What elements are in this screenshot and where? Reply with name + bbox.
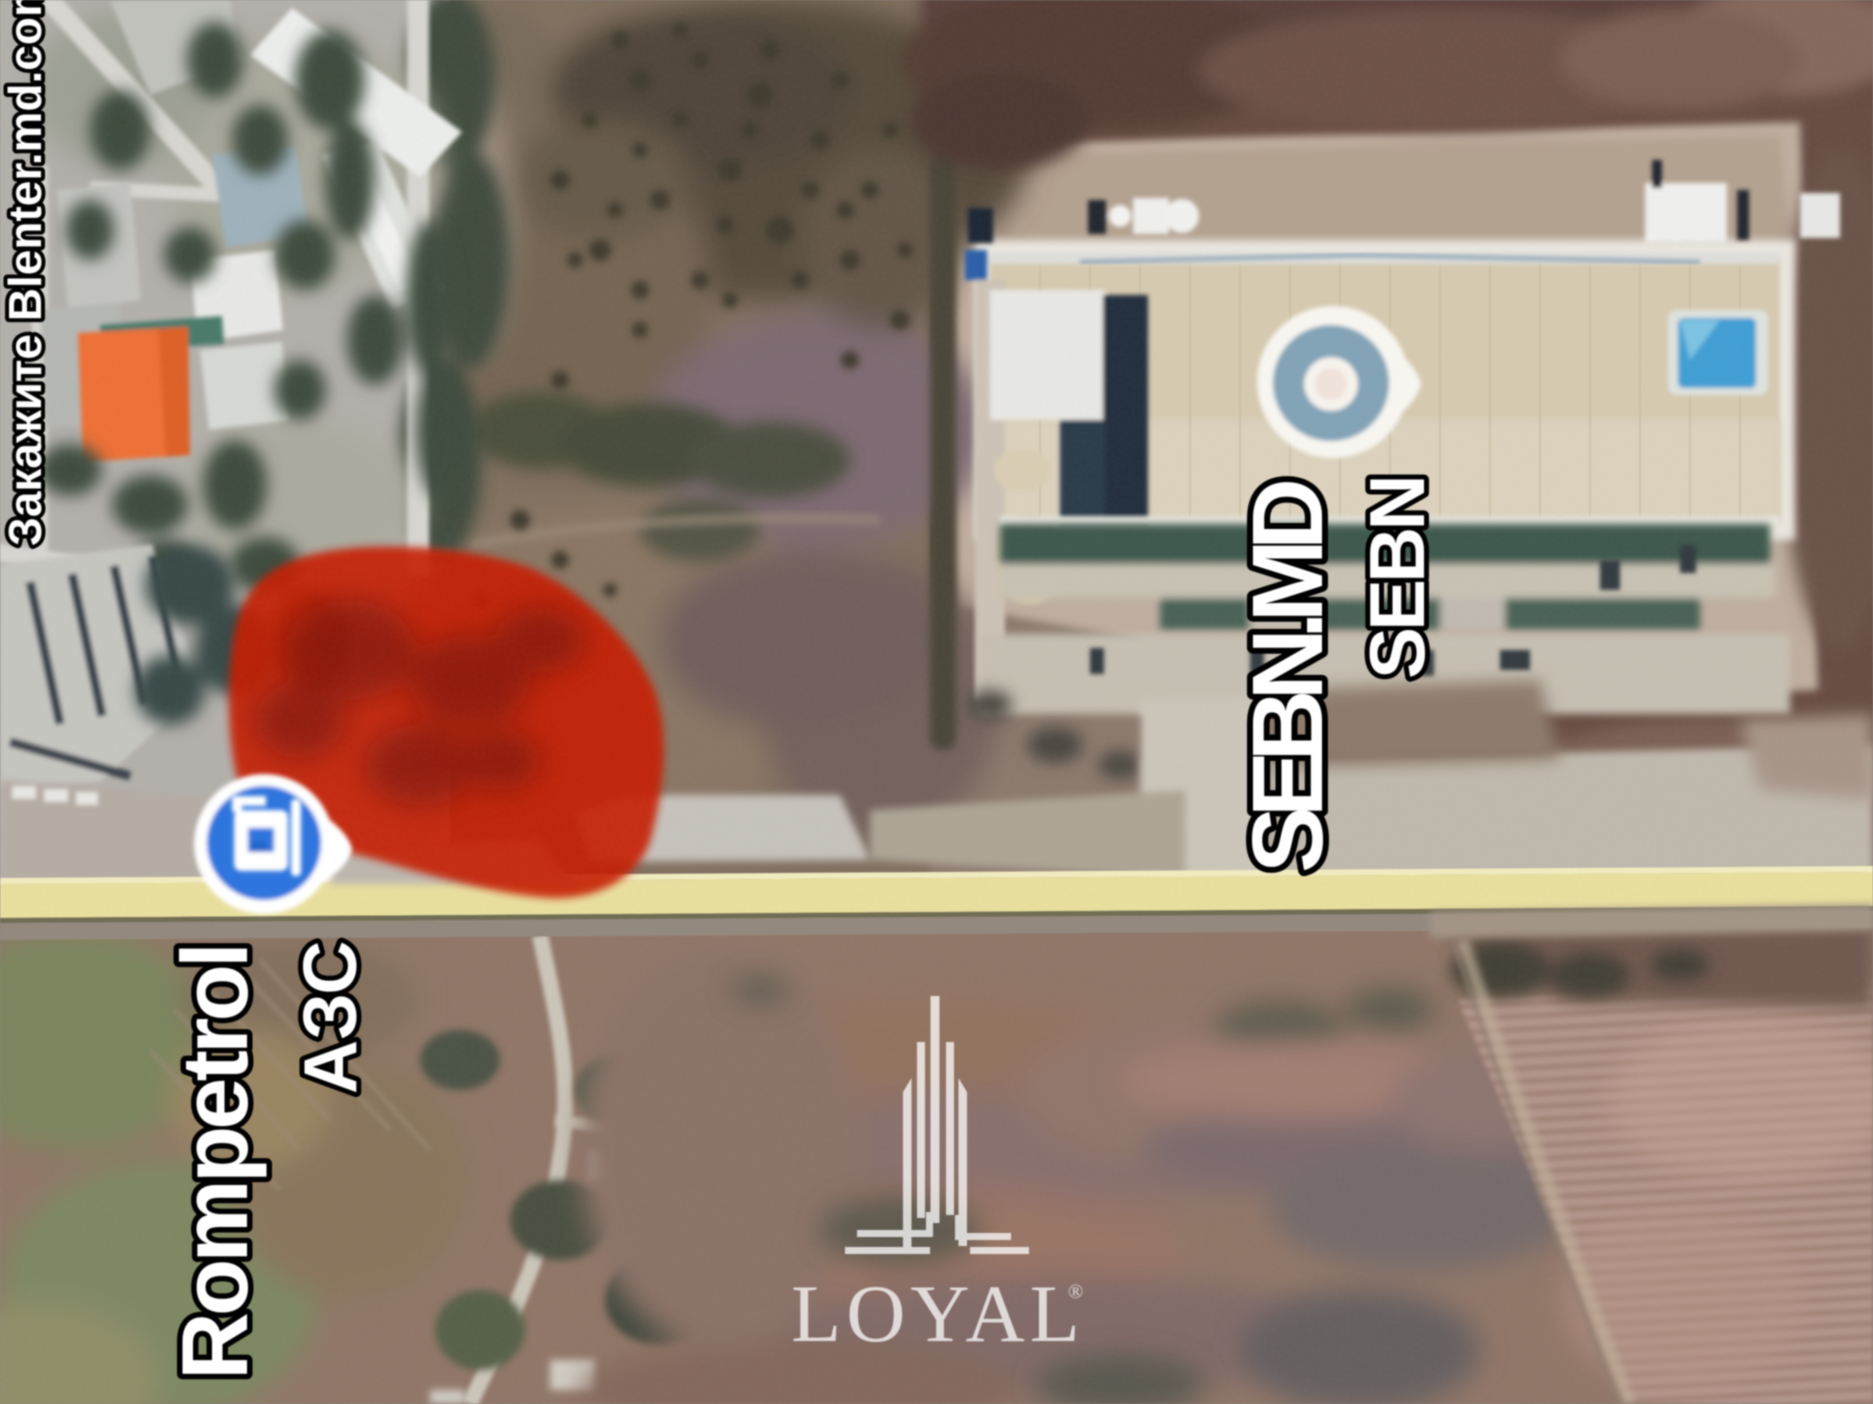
svg-text:®: ® xyxy=(1068,1281,1083,1303)
svg-text:Закажите Blenter.md.com: Закажите Blenter.md.com xyxy=(0,0,51,546)
svg-text:Rompetrol: Rompetrol xyxy=(162,946,267,1380)
svg-text:SEBN.MD: SEBN.MD xyxy=(1232,481,1344,873)
svg-text:LOYAL: LOYAL xyxy=(791,1268,1085,1359)
svg-text:SEBN: SEBN xyxy=(1353,478,1441,679)
svg-text:АЗС: АЗС xyxy=(288,941,372,1094)
